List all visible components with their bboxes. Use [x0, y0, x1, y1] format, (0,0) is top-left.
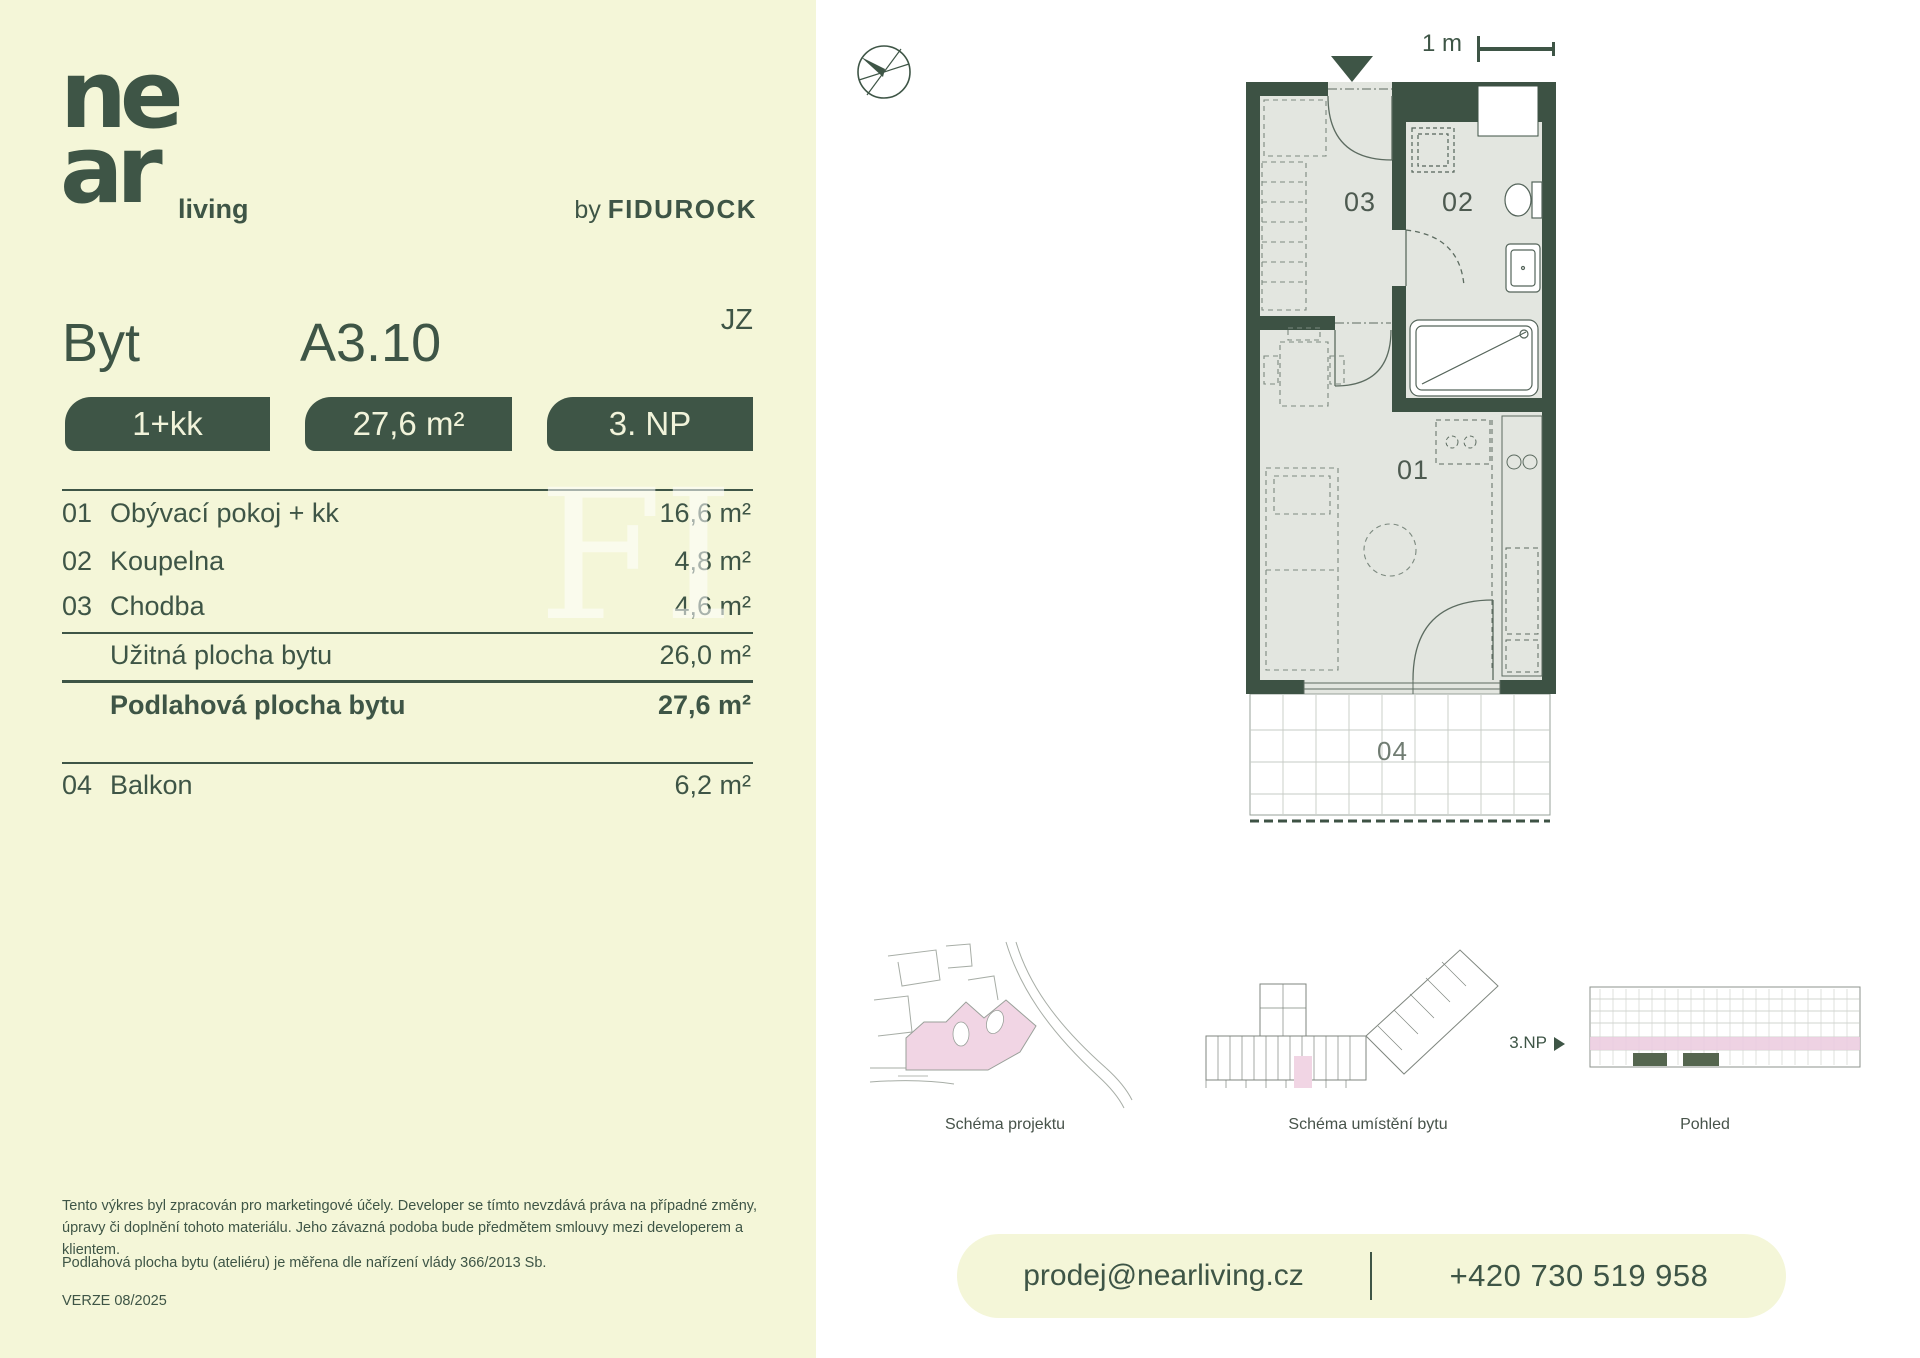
total-area-label: Podlahová plocha bytu [110, 690, 406, 721]
scale-label: 1 m [1422, 30, 1462, 58]
elevation-caption: Pohled [1580, 1116, 1830, 1134]
disclaimer-paragraph: Tento výkres byl zpracován pro marketing… [62, 1196, 762, 1261]
table-divider [62, 632, 753, 634]
brand-logo-letters: ne ar [60, 58, 390, 208]
site-plan-graphic [868, 940, 1143, 1112]
scale-bar [1477, 47, 1555, 51]
floor-marker-label: 3.NP [1492, 1033, 1547, 1053]
room-name: Chodba [110, 591, 205, 622]
room-code: 01 [62, 498, 92, 529]
floorplan-label-01: 01 [1397, 455, 1429, 486]
version-label: VERZE 08/2025 [62, 1291, 762, 1313]
room-area: 16,6 m² [659, 498, 751, 529]
floor-location-graphic [1198, 948, 1508, 1098]
site-building-footprint [906, 1000, 1036, 1070]
floorplan-label-02: 02 [1442, 187, 1474, 218]
compass-icon [855, 43, 913, 101]
table-row: 03 Chodba 4,6 m² [62, 591, 753, 623]
floor-marker-arrow-icon [1554, 1037, 1565, 1051]
contact-phone[interactable]: +420 730 519 958 [1450, 1258, 1709, 1294]
table-row: 01 Obývací pokoj + kk 16,6 m² [62, 498, 753, 530]
unit-type-label: Byt [62, 312, 140, 374]
table-divider [62, 762, 753, 764]
building-outline [1206, 950, 1498, 1088]
usable-area-value: 26,0 m² [659, 640, 751, 671]
total-area-row: Podlahová plocha bytu 27,6 m² [62, 690, 753, 722]
orientation-label: JZ [553, 304, 753, 337]
usable-area-row: Užitná plocha bytu 26,0 m² [62, 640, 753, 672]
room-area: 4,8 m² [674, 546, 751, 577]
badge-floor: 3. NP [547, 397, 753, 451]
byline-brand: FIDUROCK [608, 194, 757, 224]
contact-bar: prodej@nearliving.cz +420 730 519 958 [957, 1234, 1786, 1318]
room-area: 6,2 m² [674, 770, 751, 801]
developer-byline: by FIDUROCK [457, 194, 757, 225]
site-plan-caption: Schéma projektu [875, 1116, 1135, 1134]
room-name: Balkon [110, 770, 193, 801]
room-code: 04 [62, 770, 92, 801]
elevation-graphic [1555, 975, 1885, 1095]
logo-tagline: living [178, 194, 249, 225]
brand-logo: ne ar living [60, 58, 390, 228]
contact-email[interactable]: prodej@nearliving.cz [1023, 1259, 1304, 1293]
floorplan-label-04: 04 [1377, 736, 1408, 767]
floor-highlight-band [1590, 1037, 1860, 1050]
table-divider-thick [62, 680, 753, 683]
unit-id: A3.10 [300, 312, 441, 374]
badge-area: 27,6 m² [305, 397, 512, 451]
table-row: 02 Koupelna 4,8 m² [62, 546, 753, 578]
room-name: Obývací pokoj + kk [110, 498, 339, 529]
room-code: 03 [62, 591, 92, 622]
room-name: Koupelna [110, 546, 224, 577]
location-caption: Schéma umístění bytu [1218, 1116, 1518, 1134]
floorplan-label-03: 03 [1344, 187, 1376, 218]
room-area: 4,6 m² [674, 591, 751, 622]
room-code: 02 [62, 546, 92, 577]
total-area-value: 27,6 m² [658, 690, 751, 721]
badge-layout: 1+kk [65, 397, 270, 451]
balcony-row: 04 Balkon 6,2 m² [62, 770, 753, 802]
scale-bar-tick [1552, 42, 1555, 56]
measurement-note: Podlahová plocha bytu (ateliéru) je měře… [62, 1253, 762, 1275]
usable-area-label: Užitná plocha bytu [110, 640, 332, 671]
unit-highlight [1294, 1056, 1312, 1088]
byline-prefix: by [574, 196, 600, 224]
table-divider [62, 489, 753, 491]
shaft [1478, 86, 1538, 136]
